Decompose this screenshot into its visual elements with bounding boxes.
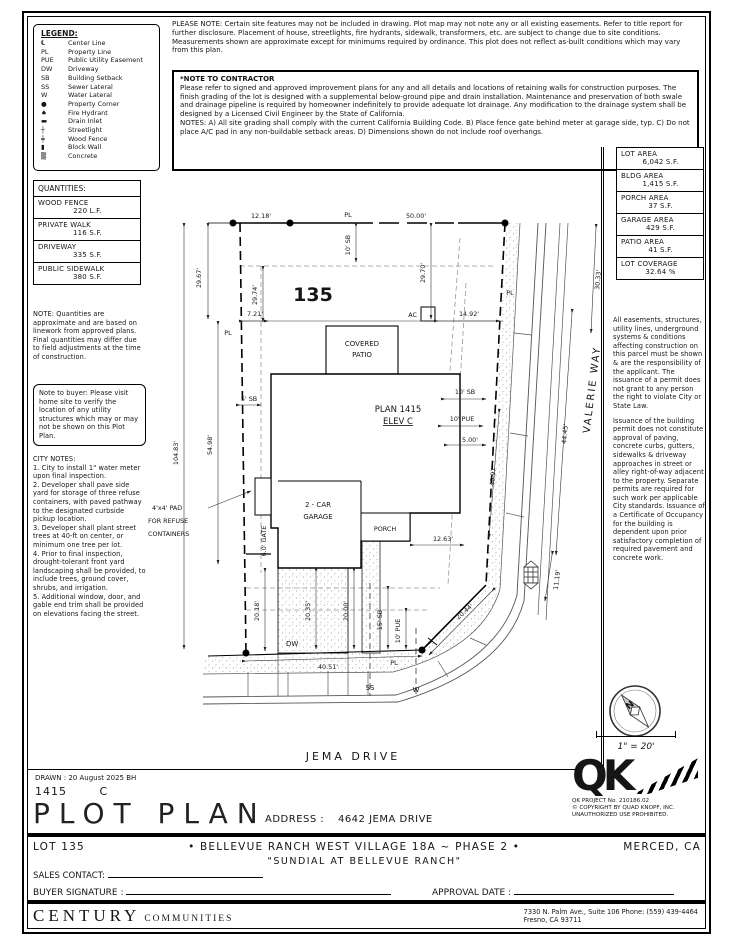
footer-city: MERCED, CA xyxy=(623,841,701,853)
dim-54-98: 54.98' xyxy=(206,435,214,455)
qk-project-number: QK PROJECT No. 210186.02 xyxy=(572,798,704,805)
legend-item-block-wall: ▮Block Wall xyxy=(41,143,155,152)
dim-29-70: 29.70' xyxy=(419,263,427,283)
dim-10-sb-top: 10' SB xyxy=(344,235,352,255)
jema-drive-label: JEMA DRIVE xyxy=(305,750,401,763)
heavy-rule-1 xyxy=(28,833,706,837)
driveway-symbol: DW xyxy=(41,65,68,74)
gate-label: 6.0' GATE xyxy=(260,526,268,557)
dim-44-45: 44.45' xyxy=(560,423,570,444)
streetlight-icon: ┼ xyxy=(41,126,68,135)
contractor-note-list: NOTES: A) All site grading shall comply … xyxy=(180,119,691,137)
dim-29-74: 29.74' xyxy=(251,285,259,305)
refuse-pad-label-2: FOR REFUSE xyxy=(148,517,188,525)
property-corner-dot xyxy=(287,220,293,226)
footer-subdivision: • BELLEVUE RANCH WEST VILLAGE 18A ~ PHAS… xyxy=(188,841,520,853)
drain-inlet-symbol xyxy=(524,561,538,589)
legend-item-wood-fence: ╪Wood Fence xyxy=(41,135,155,144)
area-row-garage: GARAGE AREA429 S.F. xyxy=(617,214,703,236)
area-row-coverage: LOT COVERAGE32.64 % xyxy=(617,258,703,279)
footer-lot: LOT 135 xyxy=(33,841,85,853)
ac-pad xyxy=(421,307,435,321)
qk-logo-block: QK QK PROJECT No. 210186.02 © COPYRIGHT … xyxy=(572,756,704,819)
concrete-icon: ▒ xyxy=(41,152,68,161)
legend-item-property-line: PLProperty Line xyxy=(41,48,155,57)
lot-number: 135 xyxy=(293,284,333,306)
permit-note: Issuance of the building permit does not… xyxy=(613,417,705,563)
west-property-line xyxy=(240,223,246,653)
dim-10-sb-right: 10' SB xyxy=(455,388,475,396)
qty-row-private-walk: PRIVATE WALK116 S.F. xyxy=(34,219,140,241)
contractor-note-title: *NOTE TO CONTRACTOR xyxy=(180,75,691,84)
legend-item-drain-inlet: ▬Drain Inlet xyxy=(41,117,155,126)
century-communities-logo: CENTURY COMMUNITIES xyxy=(33,906,233,926)
dim-20-18: 20.18' xyxy=(253,601,261,621)
legend-box: LEGEND: ℄Center Line PLProperty Line PUE… xyxy=(33,24,160,171)
sales-contact-row: SALES CONTACT: xyxy=(33,869,263,881)
property-corner-dot xyxy=(502,220,508,226)
city-note-2: 2. Developer shall pave side yard for st… xyxy=(33,481,146,524)
jema-walk-joints xyxy=(248,671,368,696)
dim-12-18: 12.18' xyxy=(251,212,271,220)
dim-5-sb: 5' SB xyxy=(241,395,257,403)
pl-label-east: PL xyxy=(506,289,514,297)
dim-20-35: 20.35' xyxy=(304,601,312,621)
qk-logo-text: QK xyxy=(572,756,630,796)
dim-10-pue-right: 10' PUE xyxy=(450,415,475,423)
water-symbol: W xyxy=(41,91,68,100)
covered-patio-outline xyxy=(326,326,398,374)
approval-date-row: APPROVAL DATE : xyxy=(432,885,674,898)
scale-bar-line xyxy=(597,736,675,737)
site-plan-drawing: 12.18' PL 50.00' 29.67' 104.83' 54.98' 2… xyxy=(148,183,608,773)
dim-30-33: 30.33' xyxy=(593,269,603,290)
north-arrow-compass: N xyxy=(606,682,664,740)
qk-rights: UNAUTHORIZED USE PROHIBITED. xyxy=(572,812,704,819)
fire-hydrant-icon: ♠ xyxy=(41,109,68,118)
city-notes-title: CITY NOTES: xyxy=(33,455,146,464)
quantities-title: QUANTITIES: xyxy=(34,181,140,197)
sewer-label: SS xyxy=(366,684,375,692)
brand-address-line2: Fresno, CA 93711 xyxy=(524,916,698,924)
quantities-table: QUANTITIES: WOOD FENCE220 L.F. PRIVATE W… xyxy=(33,180,141,285)
dw-label: DW xyxy=(286,640,298,648)
legend-item-pue: PUEPublic Utility Easement xyxy=(41,56,155,65)
dim-50-00: 50.00' xyxy=(406,212,426,220)
brand-address-line1: 7330 N. Palm Ave., Suite 106 Phone: (559… xyxy=(524,908,698,916)
buyer-signature-label: BUYER SIGNATURE : xyxy=(33,888,124,898)
legend-item-water: WWater Lateral xyxy=(41,91,155,100)
please-note: PLEASE NOTE: Certain site features may n… xyxy=(172,20,698,55)
legend-item-concrete: ▒Concrete xyxy=(41,152,155,161)
property-line-symbol: PL xyxy=(41,48,68,57)
covered-patio-label-1: COVERED xyxy=(345,340,379,348)
water-label: W xyxy=(413,686,420,694)
address-line: ADDRESS : 4642 JEMA DRIVE xyxy=(265,814,433,825)
easements-note: All easements, structures, utility lines… xyxy=(613,316,705,411)
setback-symbol: SB xyxy=(41,74,68,83)
subdivision-row: LOT 135 • BELLEVUE RANCH WEST VILLAGE 18… xyxy=(33,841,701,853)
legend-item-fire-hydrant: ♠Fire Hydrant xyxy=(41,109,155,118)
city-note-5: 5. Additional window, door, and gable en… xyxy=(33,593,146,619)
dim-5-00: 5.00' xyxy=(462,436,478,444)
sewer-symbol: SS xyxy=(41,83,68,92)
title-block-divider xyxy=(28,769,575,770)
qty-row-wood-fence: WOOD FENCE220 L.F. xyxy=(34,197,140,219)
contractor-note-body: Please refer to signed and approved impr… xyxy=(180,84,691,119)
quantities-note: NOTE: Quantities are approximate and are… xyxy=(33,310,143,362)
dim-29-67: 29.67' xyxy=(195,268,203,288)
brand-footer: CENTURY COMMUNITIES 7330 N. Palm Ave., S… xyxy=(28,904,706,929)
areas-table: LOT AREA6,042 S.F. BLDG AREA1,415 S.F. P… xyxy=(616,147,704,280)
pl-label-west: PL xyxy=(224,329,232,337)
street-line xyxy=(538,223,560,615)
ac-label: AC xyxy=(408,311,417,319)
area-row-lot: LOT AREA6,042 S.F. xyxy=(617,148,703,170)
garage-label-2: GARAGE xyxy=(303,513,332,521)
drain-inlet-box xyxy=(524,567,538,583)
wood-fence-icon: ╪ xyxy=(41,135,68,144)
dim-12-63: 12.63' xyxy=(433,535,453,543)
brand-main: CENTURY xyxy=(33,906,140,926)
pl-label-south: PL xyxy=(390,659,398,667)
plan-label: PLAN 1415 xyxy=(375,405,422,415)
dim-104-83: 104.83' xyxy=(172,441,180,465)
address-label: ADDRESS : xyxy=(265,814,324,825)
block-wall-icon: ▮ xyxy=(41,143,68,152)
legend-title: LEGEND: xyxy=(41,29,155,38)
city-note-3: 3. Developer shall plant street trees at… xyxy=(33,524,146,550)
dim-10-pue-front: 10' PUE xyxy=(394,619,402,644)
city-note-1: 1. City to install 1" water meter upon f… xyxy=(33,464,146,481)
approval-date-label: APPROVAL DATE : xyxy=(432,888,511,898)
city-note-4: 4. Prior to final inspection, drought-to… xyxy=(33,550,146,593)
sales-contact-field xyxy=(108,869,263,878)
sales-contact-label: SALES CONTACT: xyxy=(33,871,105,881)
sheet-title: PLOT PLAN xyxy=(33,797,267,830)
refuse-pad-label-3: CONTAINERS xyxy=(148,530,189,538)
drain-inlet-icon: ▬ xyxy=(41,117,68,126)
drawn-by: DRAWN : 20 August 2025 BH xyxy=(35,774,136,782)
buyer-signature-field xyxy=(126,885,391,895)
garage-label-1: 2 - CAR xyxy=(305,501,331,509)
dim-15-sb: 15' SB xyxy=(376,610,384,630)
centerline-symbol: ℄ xyxy=(41,39,68,48)
approval-date-field xyxy=(514,885,674,895)
pl-label-top: PL xyxy=(344,211,352,219)
refuse-pad xyxy=(255,478,271,515)
area-row-porch: PORCH AREA37 S.F. xyxy=(617,192,703,214)
qk-logo-stripes-icon xyxy=(634,758,698,794)
brand-sub: COMMUNITIES xyxy=(144,914,233,924)
buyer-signature-row: BUYER SIGNATURE : xyxy=(33,885,391,898)
property-corner-icon: ● xyxy=(41,100,68,109)
qty-row-driveway: DRIVEWAY335 S.F. xyxy=(34,241,140,263)
valerie-way-label: VALERIE WAY xyxy=(582,345,604,434)
qk-copyright: © COPYRIGHT BY QUAD KNOPF, INC. xyxy=(572,805,704,812)
porch-label: PORCH xyxy=(374,525,396,533)
qty-row-public-sidewalk: PUBLIC SIDEWALK380 S.F. xyxy=(34,263,140,284)
plot-plan-sheet: { "legend": { "title": "LEGEND:", "items… xyxy=(0,0,729,946)
dim-40-51: 40.51' xyxy=(318,663,338,671)
pue-symbol: PUE xyxy=(41,56,68,65)
dim-11-19: 11.19' xyxy=(552,569,562,590)
dim-20-00: 20.00' xyxy=(342,601,350,621)
buyer-note-box: Note to buyer: Please visit home site to… xyxy=(33,384,146,446)
private-walk xyxy=(362,541,380,653)
legend-item-setback: SBBuilding Setback xyxy=(41,74,155,83)
elev-label: ELEV C xyxy=(383,417,413,427)
legend-item-property-corner: ●Property Corner xyxy=(41,100,155,109)
city-notes: CITY NOTES: 1. City to install 1" water … xyxy=(33,455,146,618)
legend-item-driveway: DWDriveway xyxy=(41,65,155,74)
brand-address: 7330 N. Palm Ave., Suite 106 Phone: (559… xyxy=(524,908,698,924)
legend-item-streetlight: ┼Streetlight xyxy=(41,126,155,135)
legend-item-centerline: ℄Center Line xyxy=(41,39,155,48)
address-value: 4642 JEMA DRIVE xyxy=(338,814,433,825)
covered-patio-label-2: PATIO xyxy=(352,351,372,359)
refuse-pad-label-1: 4'x4' PAD xyxy=(152,504,182,512)
right-notes: All easements, structures, utility lines… xyxy=(613,316,705,563)
property-corner-dot xyxy=(230,220,236,226)
community-name: "SUNDIAL AT BELLEVUE RANCH" xyxy=(0,856,729,867)
dim-14-92: 14.92' xyxy=(459,310,479,318)
area-row-patio: PATIO AREA41 S.F. xyxy=(617,236,703,258)
area-row-bldg: BLDG AREA1,415 S.F. xyxy=(617,170,703,192)
legend-item-sewer: SSSewer Lateral xyxy=(41,83,155,92)
dim-7-21: 7.21' xyxy=(247,310,263,318)
property-corner-dot xyxy=(243,650,249,656)
